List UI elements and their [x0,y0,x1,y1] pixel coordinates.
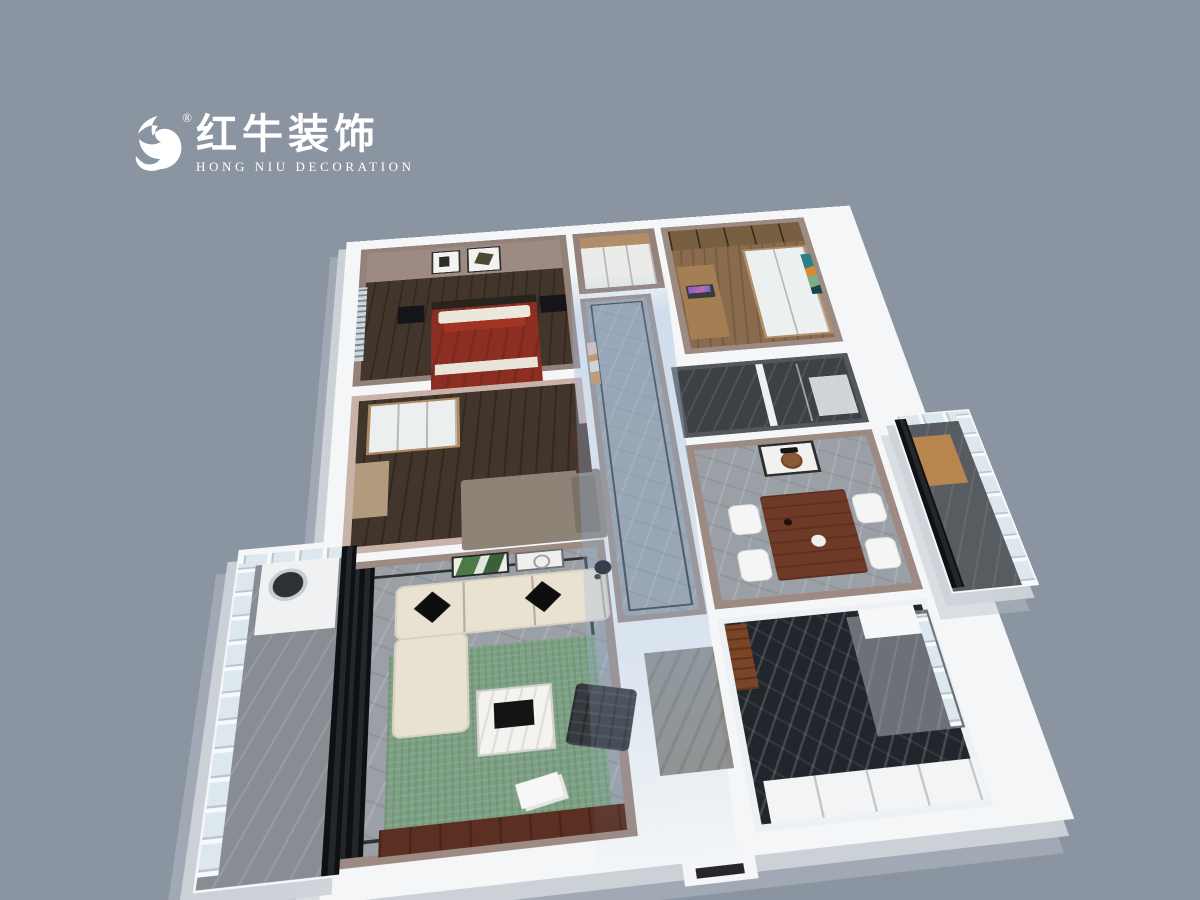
balcony-window-right [955,411,1037,585]
nightstand-left [397,305,424,324]
sofa-chaise [392,632,470,740]
kitchen-wood-door [725,624,760,691]
brand-logo: ® 红牛装饰 HONG NIU DECORATION [128,112,415,176]
balcony-window-left [197,563,256,878]
closet-wood-shelf [579,233,650,249]
bedroom-artwork-left [432,250,461,274]
white-bed-throw [435,357,538,376]
registered-trademark: ® [182,110,192,126]
room-left-balcony [196,545,357,890]
bull-logo-icon: ® [128,112,190,176]
brand-name-english: HONG NIU DECORATION [196,159,415,175]
white-appliance [858,605,922,639]
room-second-bedroom [342,377,599,555]
bear-portrait-artwork [757,440,821,477]
shower-tray [809,374,859,416]
bedroom2-wardrobe [366,397,460,455]
shower-glass [795,364,813,422]
dining-chair [850,492,889,524]
brand-name-chinese: 红牛装饰 [196,112,415,156]
dining-chair [863,536,903,570]
nightstand-right [539,294,567,313]
master-bed [431,302,543,391]
bull-glyph [128,112,190,176]
brand-text: 红牛装饰 HONG NIU DECORATION [196,112,415,175]
bedroom-artwork-right [467,246,502,273]
laptop [686,284,716,299]
room-master-bedroom [352,235,580,387]
dining-chair [736,548,774,582]
coffee-table [476,683,556,757]
render-background: ® 红牛装饰 HONG NIU DECORATION [0,0,1200,900]
study-desk [677,264,731,339]
bathroom-partition-wall [755,364,778,426]
bedroom2-sideboard [352,461,389,519]
washing-machine-cabinet [254,557,339,636]
floorplan-3d-render [292,206,1087,900]
dining-chair [727,503,764,535]
